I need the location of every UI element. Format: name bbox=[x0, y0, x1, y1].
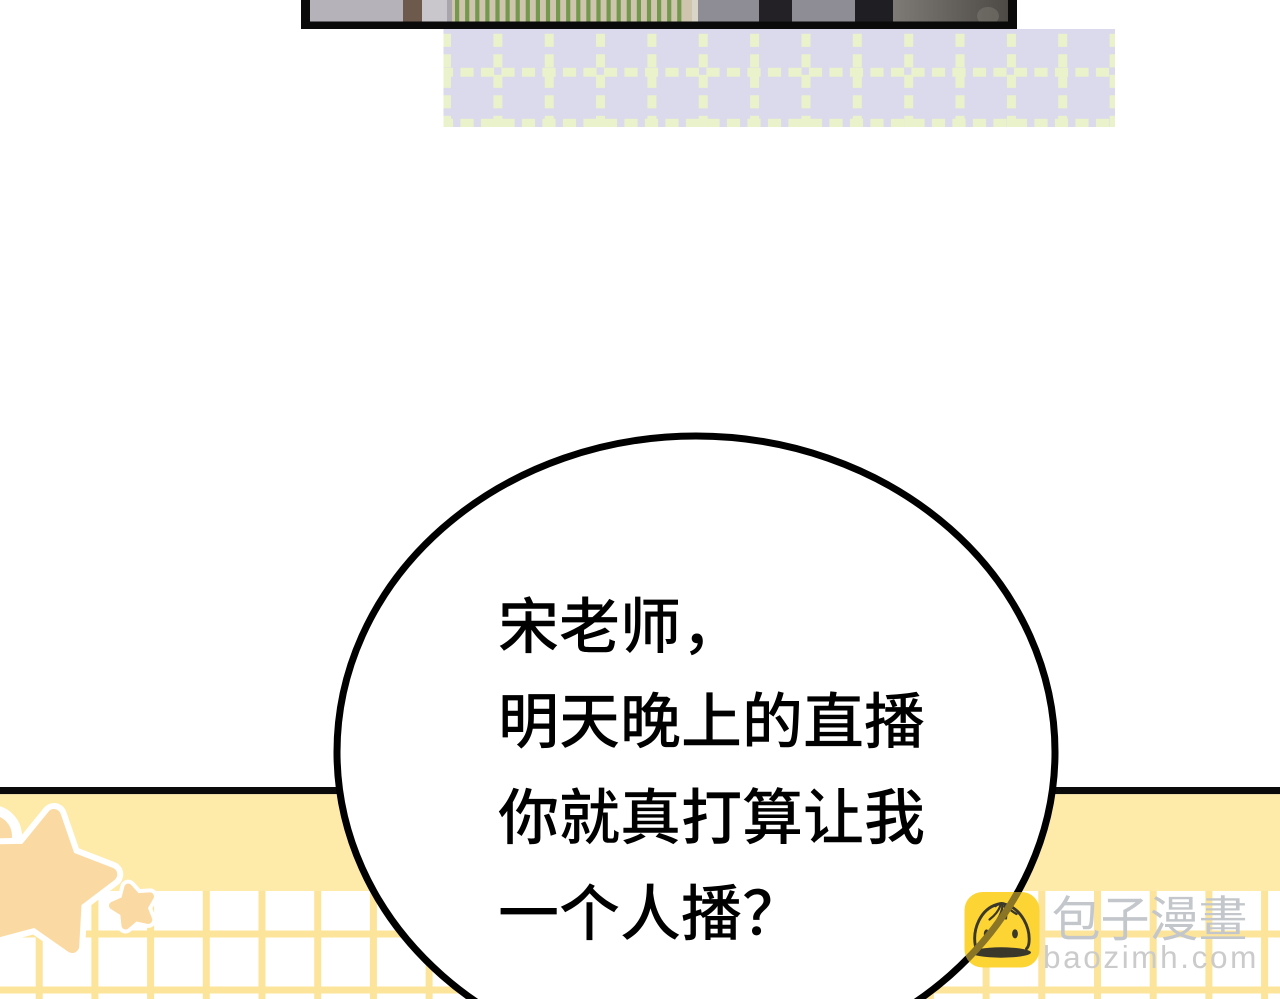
svg-text:baozimh.com: baozimh.com bbox=[1043, 939, 1259, 975]
